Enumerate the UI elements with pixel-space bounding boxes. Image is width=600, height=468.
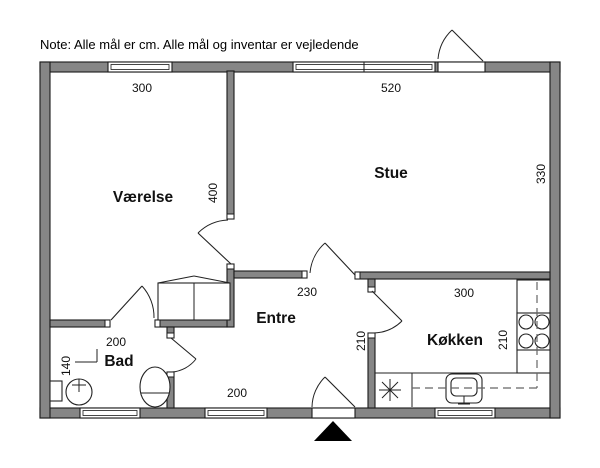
door-entre-south-swing-arc (312, 377, 325, 407)
outer-wall-left (40, 62, 50, 418)
wall-koekken-lower (368, 333, 375, 408)
window-entre (205, 408, 267, 418)
door-bad-vaerelse-swing-arc (142, 286, 154, 318)
floor-plan-image: Note: Alle mål er cm. Alle mål og invent… (0, 0, 600, 468)
threshold-entre-south (312, 408, 355, 418)
door-koekken-swing-arc (374, 321, 402, 333)
door-jamb (227, 214, 234, 219)
door-jamb (105, 320, 110, 327)
threshold-main-entrance (438, 62, 485, 72)
door-vaerelse-swing-arc (198, 220, 228, 233)
wall-entre-top-left (234, 271, 307, 278)
door-jamb (355, 272, 360, 279)
door-jamb (167, 333, 174, 338)
room-label-bad: Bad (104, 353, 133, 370)
wall-bad-north-left (50, 320, 110, 327)
floor-plan-svg: VærelseStueEntreBadKøkken300520400330230… (0, 0, 600, 468)
door-jamb (302, 271, 307, 278)
room-label-koekken: Køkken (427, 332, 483, 349)
door-bad-vaerelse-leaf (111, 286, 142, 320)
door-vaerelse-leaf (198, 233, 231, 264)
wall-stue-south (355, 272, 550, 279)
dimension-label: 210 (496, 330, 510, 350)
room-label-entre: Entre (256, 310, 296, 327)
north-arrow-icon (314, 421, 352, 441)
bad-sink-pedestal (50, 381, 62, 401)
window-vaerelse (108, 62, 172, 72)
dimension-label: 300 (132, 81, 152, 95)
room-label-stue: Stue (374, 165, 408, 182)
stove-burner (519, 334, 533, 348)
dimension-label: 140 (59, 356, 73, 376)
door-main-entrance-leaf (452, 30, 483, 61)
outer-wall-right (550, 62, 560, 418)
dimension-label: 210 (354, 331, 368, 351)
kitchen-sink-inner (451, 378, 477, 396)
door-stue-leaf (325, 243, 355, 275)
door-main-entrance-swing-arc (438, 30, 452, 59)
dimension-label: 200 (106, 335, 126, 349)
door-jamb (155, 320, 160, 327)
door-bad-entre-leaf (171, 338, 196, 359)
door-bad-entre-swing-arc (172, 359, 196, 372)
door-jamb (368, 333, 375, 338)
dimension-label: 230 (297, 285, 317, 299)
stove-burner (519, 315, 533, 329)
door-stue-swing-arc (310, 243, 325, 273)
door-koekken-leaf (372, 291, 402, 321)
door-jamb (368, 287, 375, 292)
window-bad (80, 408, 140, 418)
door-entre-south-leaf (325, 377, 355, 407)
dimension-label: 200 (227, 386, 247, 400)
window-koekken (435, 408, 495, 418)
wardrobe-roof-right (194, 276, 230, 283)
wall-bad-north-right (155, 320, 227, 327)
toilet (140, 367, 170, 407)
wardrobe-roof-left (158, 276, 194, 283)
room-label-vaerelse: Værelse (113, 189, 174, 206)
dimension-label: 330 (534, 164, 548, 184)
wall-vaerelse-stue (227, 71, 234, 219)
door-jamb (227, 264, 234, 269)
dimension-label: 520 (381, 81, 401, 95)
dimension-label: 300 (454, 286, 474, 300)
dimension-label: 400 (206, 183, 220, 203)
